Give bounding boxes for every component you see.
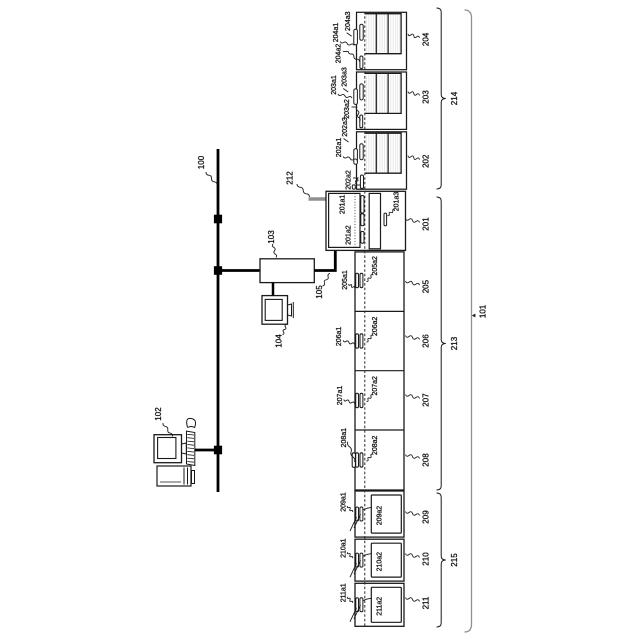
svg-text:103: 103 bbox=[267, 230, 276, 244]
svg-text:204a3: 204a3 bbox=[345, 11, 352, 31]
svg-text:206a1: 206a1 bbox=[336, 327, 343, 347]
svg-text:101: 101 bbox=[479, 304, 488, 318]
svg-text:201a2: 201a2 bbox=[345, 225, 352, 245]
svg-text:201: 201 bbox=[422, 217, 431, 231]
svg-text:205: 205 bbox=[422, 279, 431, 293]
svg-text:210a2: 210a2 bbox=[376, 552, 383, 572]
svg-text:104: 104 bbox=[275, 334, 284, 348]
svg-text:215: 215 bbox=[450, 553, 459, 567]
svg-text:209a1: 209a1 bbox=[341, 492, 348, 512]
svg-text:203a1: 203a1 bbox=[331, 75, 338, 95]
svg-text:206: 206 bbox=[422, 334, 431, 348]
svg-text:204: 204 bbox=[422, 32, 431, 46]
svg-text:202: 202 bbox=[422, 154, 431, 168]
svg-text:204a2: 204a2 bbox=[335, 44, 342, 64]
svg-text:210: 210 bbox=[422, 552, 431, 566]
svg-text:205a1: 205a1 bbox=[342, 270, 349, 290]
svg-text:202a3: 202a3 bbox=[342, 117, 349, 137]
svg-text:207: 207 bbox=[422, 393, 431, 407]
svg-text:201a1: 201a1 bbox=[339, 195, 346, 215]
svg-text:212: 212 bbox=[286, 171, 295, 185]
svg-text:207a1: 207a1 bbox=[337, 386, 344, 406]
svg-text:105: 105 bbox=[315, 285, 324, 299]
svg-text:208a1: 208a1 bbox=[341, 428, 348, 448]
svg-text:204a1: 204a1 bbox=[333, 23, 340, 43]
svg-text:201a3: 201a3 bbox=[394, 192, 401, 212]
svg-text:100: 100 bbox=[197, 155, 206, 169]
svg-text:203a2: 203a2 bbox=[344, 99, 351, 119]
svg-text:208: 208 bbox=[422, 453, 431, 467]
svg-text:202a2: 202a2 bbox=[346, 170, 353, 190]
svg-text:202a1: 202a1 bbox=[336, 138, 343, 158]
svg-text:203: 203 bbox=[422, 90, 431, 104]
svg-text:213: 213 bbox=[450, 336, 459, 350]
svg-text:206a2: 206a2 bbox=[372, 316, 379, 336]
svg-text:210a1: 210a1 bbox=[341, 538, 348, 558]
svg-text:211: 211 bbox=[422, 596, 431, 609]
svg-text:208a2: 208a2 bbox=[372, 435, 379, 455]
svg-text:209a2: 209a2 bbox=[376, 506, 383, 526]
svg-text:209: 209 bbox=[422, 510, 431, 524]
svg-text:205a2: 205a2 bbox=[372, 256, 379, 276]
svg-text:207a2: 207a2 bbox=[372, 376, 379, 396]
svg-text:211a1: 211a1 bbox=[341, 583, 348, 602]
svg-text:203a3: 203a3 bbox=[342, 67, 349, 87]
svg-text:211a2: 211a2 bbox=[376, 597, 383, 616]
svg-text:214: 214 bbox=[450, 91, 459, 105]
svg-text:102: 102 bbox=[154, 407, 163, 421]
